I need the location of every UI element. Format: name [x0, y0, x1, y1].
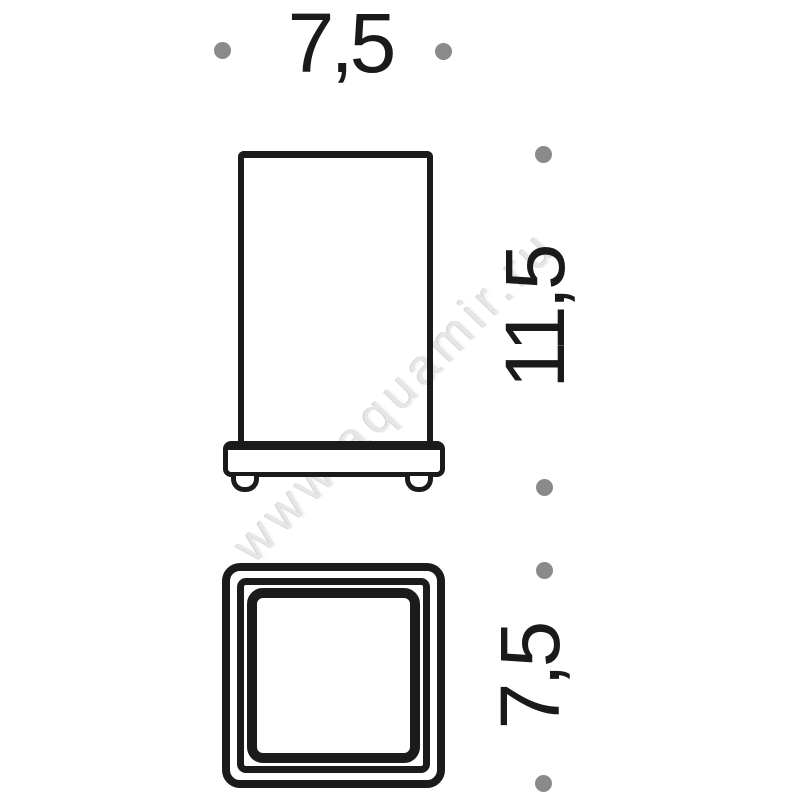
dimension-dot-bottom-top — [536, 562, 553, 579]
technical-drawing-canvas: www.aquamir.ru 7,5 11,5 7,5 — [0, 0, 800, 800]
dimension-dot-side-top — [535, 146, 552, 163]
dimension-dot-side-bottom — [536, 479, 553, 496]
plan-view-middle-square — [237, 578, 430, 773]
dimension-dot-top-right — [435, 43, 452, 60]
front-view-base-plate — [223, 441, 445, 477]
dimension-dot-bottom-bottom — [535, 775, 552, 792]
plan-view-inner-square — [247, 588, 420, 763]
front-view-foot-right — [405, 476, 433, 492]
dimension-label-bottom-depth: 7,5 — [485, 527, 575, 800]
dimension-label-side-height: 11,5 — [490, 168, 580, 468]
dimension-label-top-width: 7,5 — [235, 0, 445, 88]
dimension-dot-top-left — [214, 42, 231, 59]
front-view-body — [238, 151, 433, 446]
plan-view-outer-square — [222, 563, 445, 788]
